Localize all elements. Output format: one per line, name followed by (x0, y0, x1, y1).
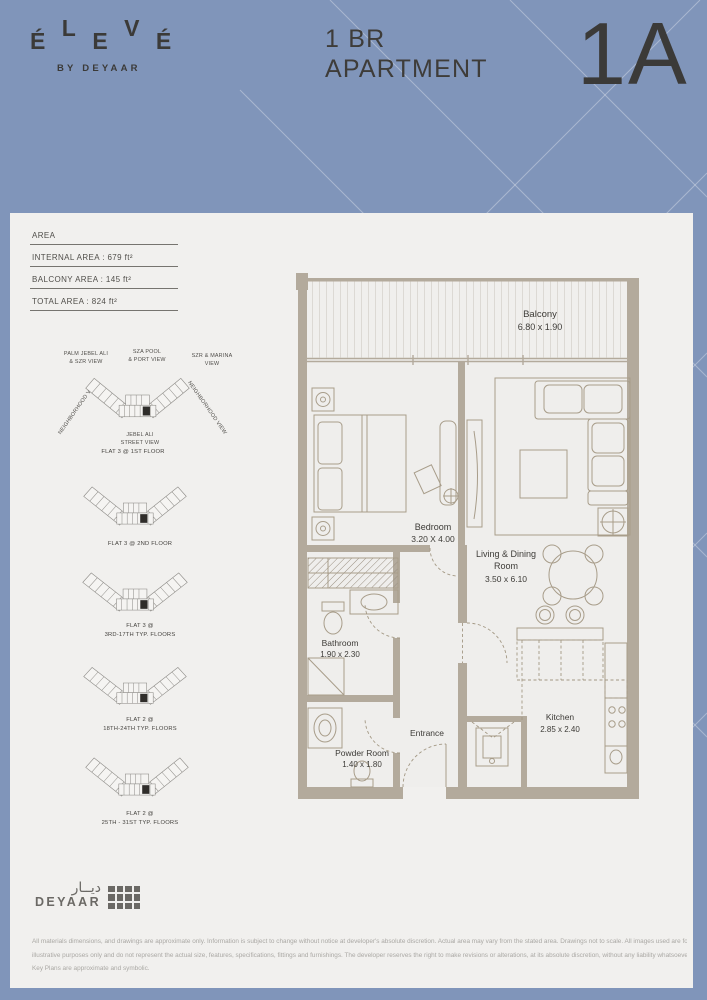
key-plan-2-caption: FLAT 3 @ 2ND FLOOR (75, 540, 205, 549)
brand-letter: É (30, 28, 45, 55)
area-balcony: BALCONY AREA : 145 ft² (30, 267, 178, 289)
disclaimer-line2: illustrative purposes only and do not re… (32, 949, 687, 963)
header: É L E V É BY DEYAAR 1 BR APARTMENT 1A (0, 0, 707, 213)
key-plan-2 (83, 472, 187, 534)
area-total: TOTAL AREA : 824 ft² (30, 289, 178, 311)
view-label-bottom: JEBEL ALISTREET VIEW (109, 431, 171, 447)
disclaimer: All materials dimensions, and drawings a… (32, 935, 687, 976)
unit-code: 1A (577, 8, 689, 100)
brand-logo: É L E V É BY DEYAAR (30, 24, 183, 74)
powder-dims: 1.40 x 1.80 (342, 760, 382, 769)
view-label-top-right: SZR & MARINAVIEW (181, 352, 243, 368)
area-table-title: AREA (30, 223, 178, 245)
disclaimer-line3: Key Plans are approximate and symbolic. (32, 962, 687, 976)
key-plan-3 (82, 558, 188, 620)
living-label-line2: Room (494, 561, 518, 571)
balcony-dims: 6.80 x 1.90 (518, 322, 563, 332)
bathroom-label: Bathroom (322, 638, 359, 648)
key-plan-4-caption: FLAT 2 @18TH-24TH TYP. FLOORS (75, 716, 205, 734)
bedroom-label: Bedroom (415, 522, 452, 532)
view-label-top-center: SZA POOL& PORT VIEW (116, 348, 178, 364)
brand-letter: V (124, 15, 139, 42)
entrance-label: Entrance (410, 728, 444, 738)
key-plan-4 (83, 653, 187, 713)
key-plan-1-caption: FLAT 3 @ 1ST FLOOR (68, 448, 198, 457)
brand-letter: L (62, 15, 76, 42)
living-dims: 3.50 x 6.10 (485, 574, 527, 584)
unit-type-line2: APARTMENT (325, 54, 488, 84)
key-plan-1 (85, 363, 190, 427)
kitchen-dims: 2.85 x 2.40 (540, 725, 580, 734)
kitchen-label: Kitchen (546, 712, 575, 722)
deyaar-logo-arabic: ديــار (35, 881, 101, 895)
balcony-label: Balcony (523, 309, 557, 320)
key-plan-5 (85, 743, 189, 805)
living-label-line1: Living & Dining (476, 549, 536, 559)
floor-plan: Balcony 6.80 x 1.90 Bedroom 3.20 X 4.00 … (288, 268, 648, 808)
deyaar-logo: ديــار DEYAAR (35, 881, 140, 909)
area-internal: INTERNAL AREA : 679 ft² (30, 245, 178, 267)
disclaimer-line1: All materials dimensions, and drawings a… (32, 935, 687, 949)
area-table: AREA INTERNAL AREA : 679 ft² BALCONY ARE… (30, 223, 178, 311)
bathroom-dims: 1.90 x 2.30 (320, 650, 360, 659)
unit-type-title: 1 BR APARTMENT (325, 24, 488, 84)
view-label-right: NEIGHBORHOOD VIEW (184, 377, 230, 439)
content-panel: AREA INTERNAL AREA : 679 ft² BALCONY ARE… (10, 213, 693, 988)
brand-letter: E (92, 28, 107, 55)
unit-type-line1: 1 BR (325, 24, 488, 54)
balcony-decking (307, 282, 627, 358)
brand-wordmark: É L E V É (30, 24, 183, 51)
deyaar-logo-latin: DEYAAR (35, 895, 101, 909)
brand-byline: BY DEYAAR (30, 63, 183, 74)
key-plan-3-caption: FLAT 3 @3RD-17TH TYP. FLOORS (75, 622, 205, 640)
powder-label: Powder Room (335, 748, 389, 758)
key-plan-5-caption: FLAT 2 @25TH - 31ST TYP. FLOORS (75, 810, 205, 828)
brand-letter: É (156, 28, 171, 55)
deyaar-logo-grid-icon (108, 886, 140, 910)
bedroom-dims: 3.20 X 4.00 (411, 534, 455, 544)
